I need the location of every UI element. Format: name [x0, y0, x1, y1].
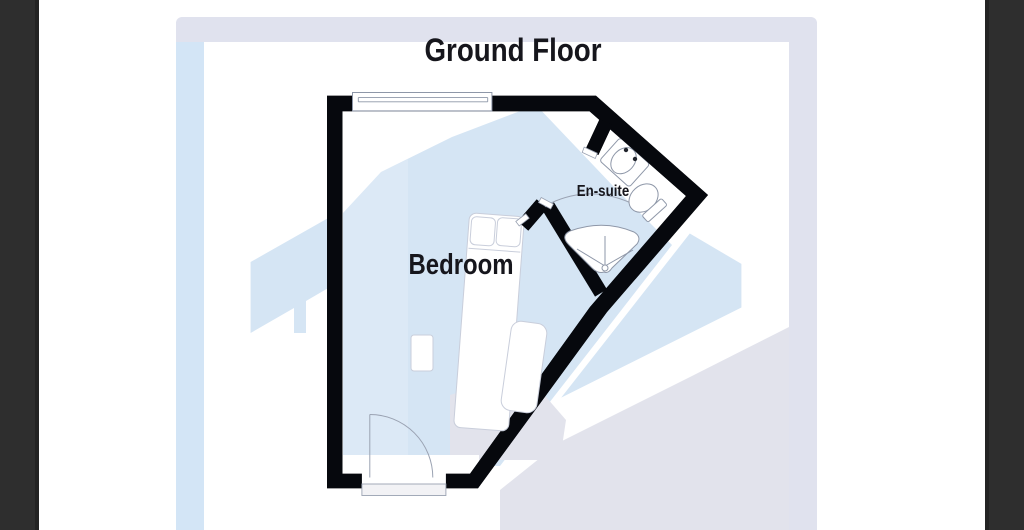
svg-text:Bedroom: Bedroom	[409, 249, 514, 281]
svg-text:Ground Floor: Ground Floor	[425, 32, 602, 68]
svg-text:En-suite: En-suite	[577, 183, 630, 200]
